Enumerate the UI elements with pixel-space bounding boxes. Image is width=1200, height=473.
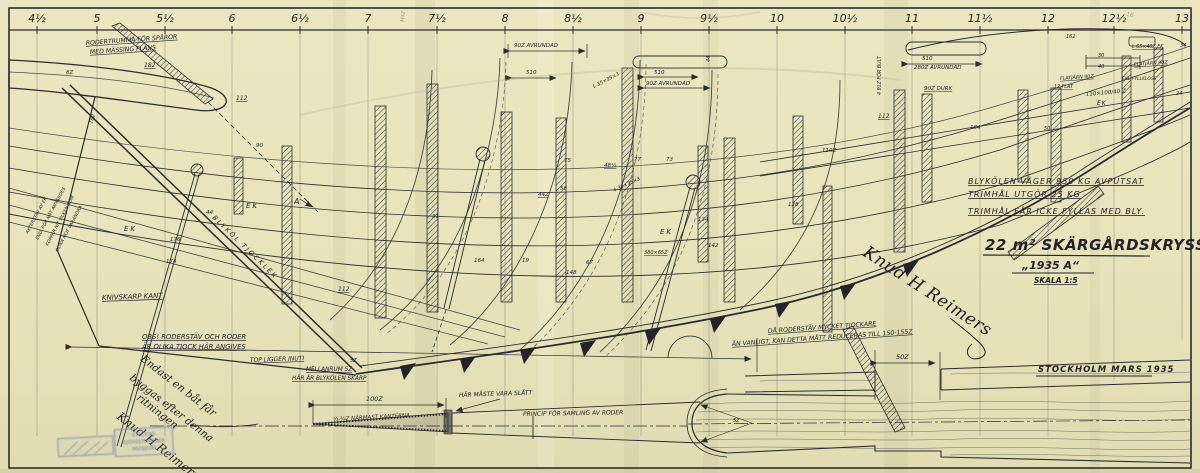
dim-label: 44 xyxy=(706,56,712,62)
station-number: 6½ xyxy=(291,12,309,25)
frame-bar xyxy=(282,146,292,304)
dim-label: 12 FLAT xyxy=(1054,84,1074,90)
station-number: 4½ xyxy=(28,12,46,25)
scan-band-light xyxy=(538,0,554,473)
rod-knob xyxy=(191,164,203,176)
drawing-canvas: 4½ 5 5½ 6 6½ 7 7½ 8 8½ 9 9½ 10 10½ 11 11… xyxy=(0,0,1200,473)
trim-hole-note: TRIMHÅL UTGÖR 25 KG xyxy=(968,188,1081,199)
dim-label: EK xyxy=(1097,100,1107,107)
dim-label: 510 xyxy=(526,70,537,76)
dim-label: EK xyxy=(660,228,673,236)
dim-label: 174 xyxy=(166,259,177,265)
station-number: 13 xyxy=(1175,12,1189,25)
rod-knob xyxy=(686,175,700,189)
dim-label: 50 xyxy=(1044,126,1050,132)
no-lead-note: TRIMHÅL FÅR ICKE FYLLAS MED BLY. xyxy=(968,205,1145,216)
note-obs-2: ÄR OLIKA TJOCK HÄR ANGIVES xyxy=(141,342,246,351)
frame-bar xyxy=(922,94,932,202)
frame-bar xyxy=(375,106,386,318)
dim-label: 90Z DURK xyxy=(924,86,953,92)
station-number: 11½ xyxy=(968,12,993,25)
frame-bar xyxy=(894,90,905,252)
dim-label: 90Z AVRUNDAD xyxy=(514,43,558,49)
dim-label: A xyxy=(293,197,299,206)
dim-label: 5Z xyxy=(350,358,357,364)
dim-label: 148 xyxy=(566,270,577,276)
dim-label: 110Z xyxy=(822,148,836,154)
dim-label: 182 xyxy=(144,62,156,69)
dim-label: 4 91Z FÖR BULT xyxy=(876,55,883,95)
dim-label: 100Z xyxy=(366,395,383,403)
dim-label: M4Z xyxy=(400,10,407,22)
frame-bar xyxy=(724,138,735,302)
dim-label: 31 xyxy=(432,214,439,220)
frame-bar xyxy=(823,186,832,332)
dim-label: EK xyxy=(246,202,259,210)
dim-label: 112 xyxy=(878,113,890,120)
dim-label: 16 xyxy=(1126,11,1135,19)
dim-label: 73 xyxy=(666,157,673,163)
drawing-title: 22 m² SKÄRGÅRDSKRYSSARE xyxy=(985,235,1200,254)
dim-label: L 65×40Z EK xyxy=(1132,44,1164,50)
dim-label: 164 xyxy=(474,258,485,264)
dim-label: 134 xyxy=(698,217,709,223)
dim-label: 40 xyxy=(1098,64,1104,70)
dim-label: 90 xyxy=(256,143,263,149)
dim-label: 75 xyxy=(564,158,571,164)
dim-label: 510 xyxy=(654,70,665,76)
frame-bar xyxy=(698,146,708,262)
dim-label: 44 xyxy=(206,210,213,216)
dim-label: EKL.FYLLKLOSS xyxy=(1122,76,1157,82)
dim-label: 24 xyxy=(1176,91,1182,97)
station-number: 6 xyxy=(229,12,236,25)
frame-bar xyxy=(556,118,566,302)
station-number: 12 xyxy=(1041,12,1055,25)
dim-label: 510 xyxy=(922,56,933,62)
rudder-tip-endblock xyxy=(444,410,452,434)
dim-label: 104 xyxy=(970,125,981,131)
frame-bar xyxy=(1018,90,1028,182)
dim-label: 30 xyxy=(1098,53,1104,59)
dim-label: EK xyxy=(124,225,137,233)
station-number: 7 xyxy=(365,12,372,25)
dim-label: 112 xyxy=(236,95,248,102)
dim-label: 58 xyxy=(560,186,567,192)
dim-label: 8Z xyxy=(66,70,73,76)
note-gap-2: HÄR ÄR BLYKÖLEN SKARP xyxy=(292,375,367,382)
frame-bar xyxy=(427,84,438,312)
dim-label: 162 xyxy=(1066,34,1076,40)
frame-bar xyxy=(501,112,512,302)
dim-label: 19 xyxy=(522,258,529,264)
note-gap-1: MELLANRUM 5Z xyxy=(306,367,353,373)
dim-label: 34 xyxy=(1180,43,1186,49)
station-number: 10 xyxy=(770,12,784,25)
drawing-subtitle: „1935 A“ xyxy=(1021,259,1080,272)
keel-weight-note: BLYKÖLEN VÄGER 950 KG AVPUTSAT xyxy=(968,176,1144,186)
dim-label: 50Z xyxy=(896,353,909,361)
dim-label: 112 xyxy=(338,286,350,293)
dim-label: 48½ xyxy=(604,162,617,169)
station-number: 5½ xyxy=(156,12,174,25)
station-number: 7½ xyxy=(428,12,446,25)
station-number: 8 xyxy=(502,12,509,25)
dim-label: 67 xyxy=(586,260,593,266)
note-obs-1: OBS! RODERSTÄV OCH RODER xyxy=(142,332,246,341)
station-number: 8½ xyxy=(564,12,582,25)
frame-bar xyxy=(1154,48,1163,122)
station-number: 11 xyxy=(905,12,919,25)
station-number: 12½ xyxy=(1102,12,1127,25)
dim-label: 142 xyxy=(708,243,719,249)
station-number: 10½ xyxy=(833,12,858,25)
place-date: STOCKHOLM MARS 1935 xyxy=(1038,365,1174,375)
dim-label: 77 xyxy=(634,157,641,163)
dim-label: 176 xyxy=(170,237,181,243)
scale-label: SKALA 1:5 xyxy=(1034,276,1078,285)
rod-knob xyxy=(476,147,490,161)
frame-bar xyxy=(234,158,243,214)
dim-label: 280Z AVRUNDAD xyxy=(914,65,961,71)
dim-label: 380×65Z xyxy=(644,250,668,256)
dim-label: 5Z xyxy=(733,418,740,424)
frame-bar xyxy=(1122,56,1131,142)
dim-label: 128 xyxy=(788,202,799,208)
station-number: 5 xyxy=(94,12,101,25)
scanned-blueprint: 4½ 5 5½ 6 6½ 7 7½ 8 8½ 9 9½ 10 10½ 11 11… xyxy=(0,0,1200,473)
dim-label: 44Z xyxy=(538,192,549,198)
station-number: 9 xyxy=(638,12,645,25)
dim-label: 90Z AVRUNDAD xyxy=(646,81,690,87)
